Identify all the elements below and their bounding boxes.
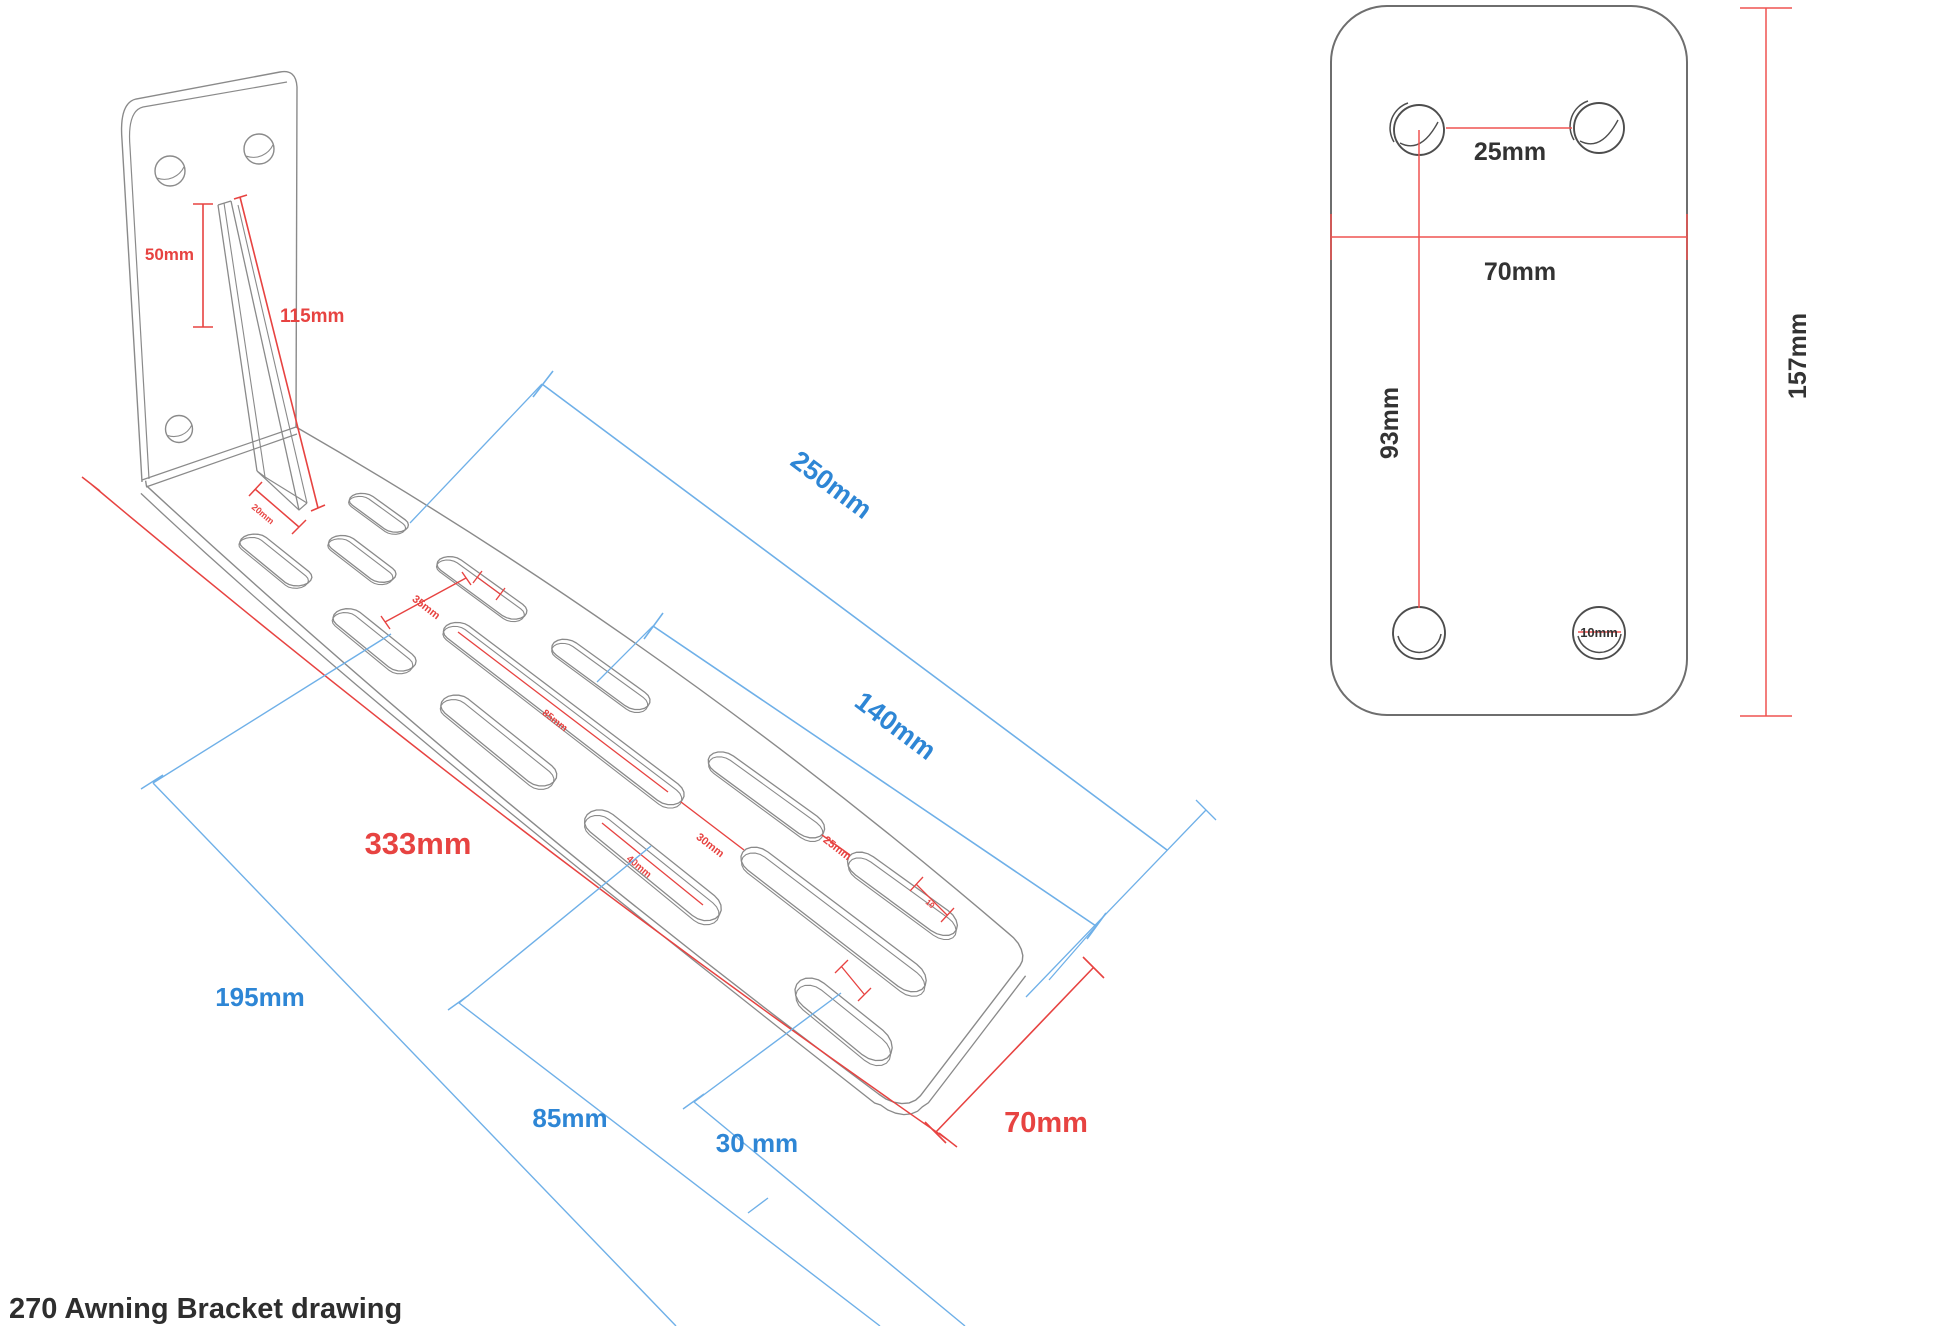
svg-text:25mm: 25mm [1474, 138, 1546, 166]
svg-text:70mm: 70mm [1484, 258, 1556, 286]
svg-text:333mm: 333mm [365, 826, 472, 861]
svg-text:10mm: 10mm [1580, 625, 1618, 640]
svg-text:157mm: 157mm [1784, 313, 1812, 399]
svg-text:30 mm: 30 mm [716, 1128, 798, 1158]
svg-text:115mm: 115mm [280, 306, 344, 327]
svg-text:93mm: 93mm [1376, 387, 1404, 459]
svg-text:195mm: 195mm [215, 982, 305, 1012]
svg-text:70mm: 70mm [1004, 1107, 1088, 1139]
svg-text:85mm: 85mm [532, 1103, 607, 1133]
svg-text:50mm: 50mm [145, 245, 194, 264]
svg-text:270 Awning Bracket drawing: 270 Awning Bracket drawing [9, 1293, 402, 1325]
